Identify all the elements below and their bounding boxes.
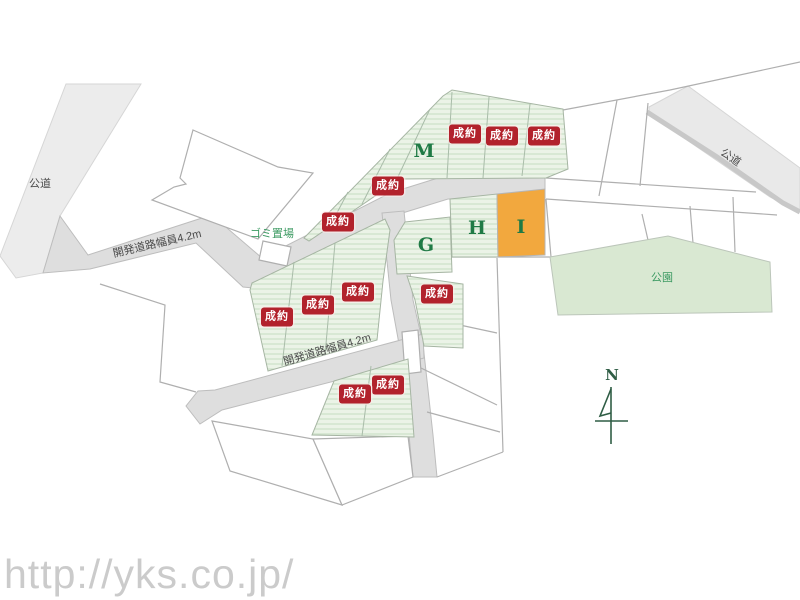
public-road-top-left-label: 公道 bbox=[29, 175, 51, 191]
lot-map-canvas: 公道 公道 開発道路幅員4.2m 開発道路幅員4.2m ゴミ置場 公園 N ht… bbox=[0, 0, 800, 600]
dev-road-lower-label: 開発道路幅員4.2m bbox=[281, 329, 372, 369]
sold-badge: 成約 bbox=[339, 385, 371, 404]
sold-badge: 成約 bbox=[302, 296, 334, 315]
label-layer: 公道 公道 開発道路幅員4.2m 開発道路幅員4.2m ゴミ置場 公園 N ht… bbox=[0, 0, 800, 600]
lot-letter-H: H bbox=[468, 217, 486, 239]
sold-badge: 成約 bbox=[486, 127, 518, 146]
sold-badge: 成約 bbox=[322, 213, 354, 232]
public-road-top-right-label: 公道 bbox=[717, 144, 744, 170]
watermark-url: http://yks.co.jp/ bbox=[4, 551, 294, 598]
lot-letter-I[interactable]: I bbox=[517, 216, 526, 238]
compass-north-label: N bbox=[605, 366, 619, 384]
garbage-station-label: ゴミ置場 bbox=[250, 225, 294, 241]
sold-badge: 成約 bbox=[342, 283, 374, 302]
sold-badge: 成約 bbox=[372, 376, 404, 395]
sold-badge: 成約 bbox=[449, 125, 481, 144]
sold-badge: 成約 bbox=[372, 177, 404, 196]
dev-road-upper-label: 開発道路幅員4.2m bbox=[111, 225, 203, 261]
sold-badge: 成約 bbox=[528, 127, 560, 146]
lot-letter-G: G bbox=[418, 234, 434, 256]
sold-badge: 成約 bbox=[261, 308, 293, 327]
lot-letter-M: M bbox=[413, 140, 434, 162]
sold-badge: 成約 bbox=[421, 285, 453, 304]
park-label: 公園 bbox=[651, 269, 673, 285]
